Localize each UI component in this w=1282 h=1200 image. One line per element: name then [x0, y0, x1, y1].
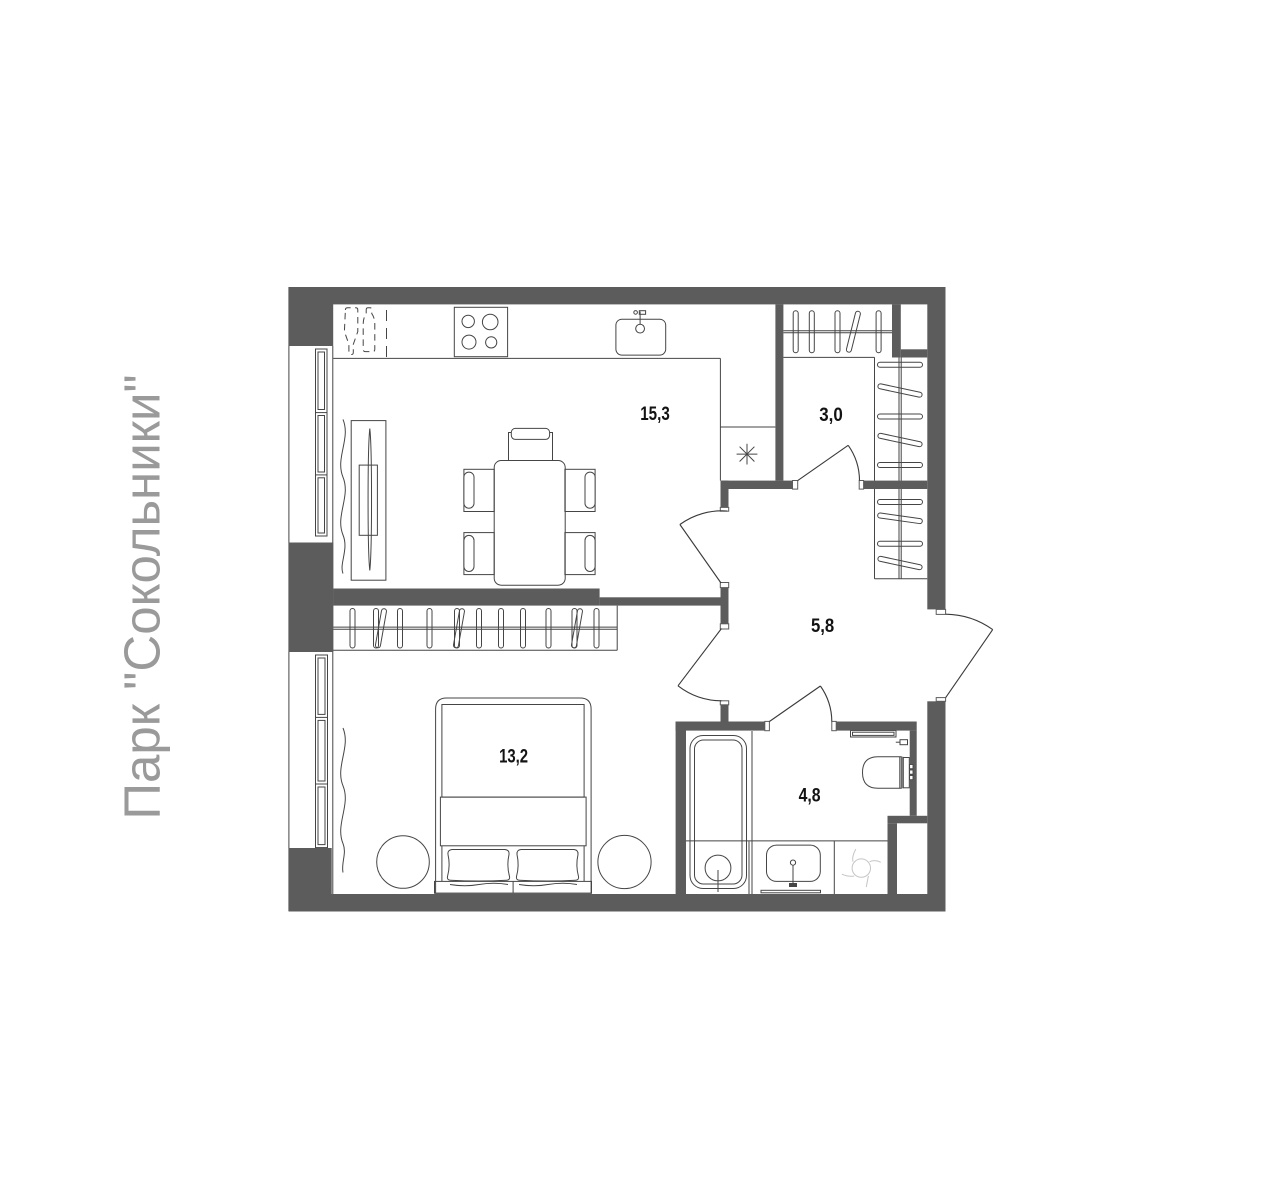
- svg-text:3,0: 3,0: [819, 405, 843, 426]
- svg-text:15,3: 15,3: [640, 404, 670, 425]
- svg-text:4,8: 4,8: [799, 786, 821, 807]
- svg-text:13,2: 13,2: [499, 747, 528, 768]
- svg-text:Парк "Сокольники": Парк "Сокольники": [113, 374, 170, 819]
- svg-text:5,8: 5,8: [811, 616, 834, 637]
